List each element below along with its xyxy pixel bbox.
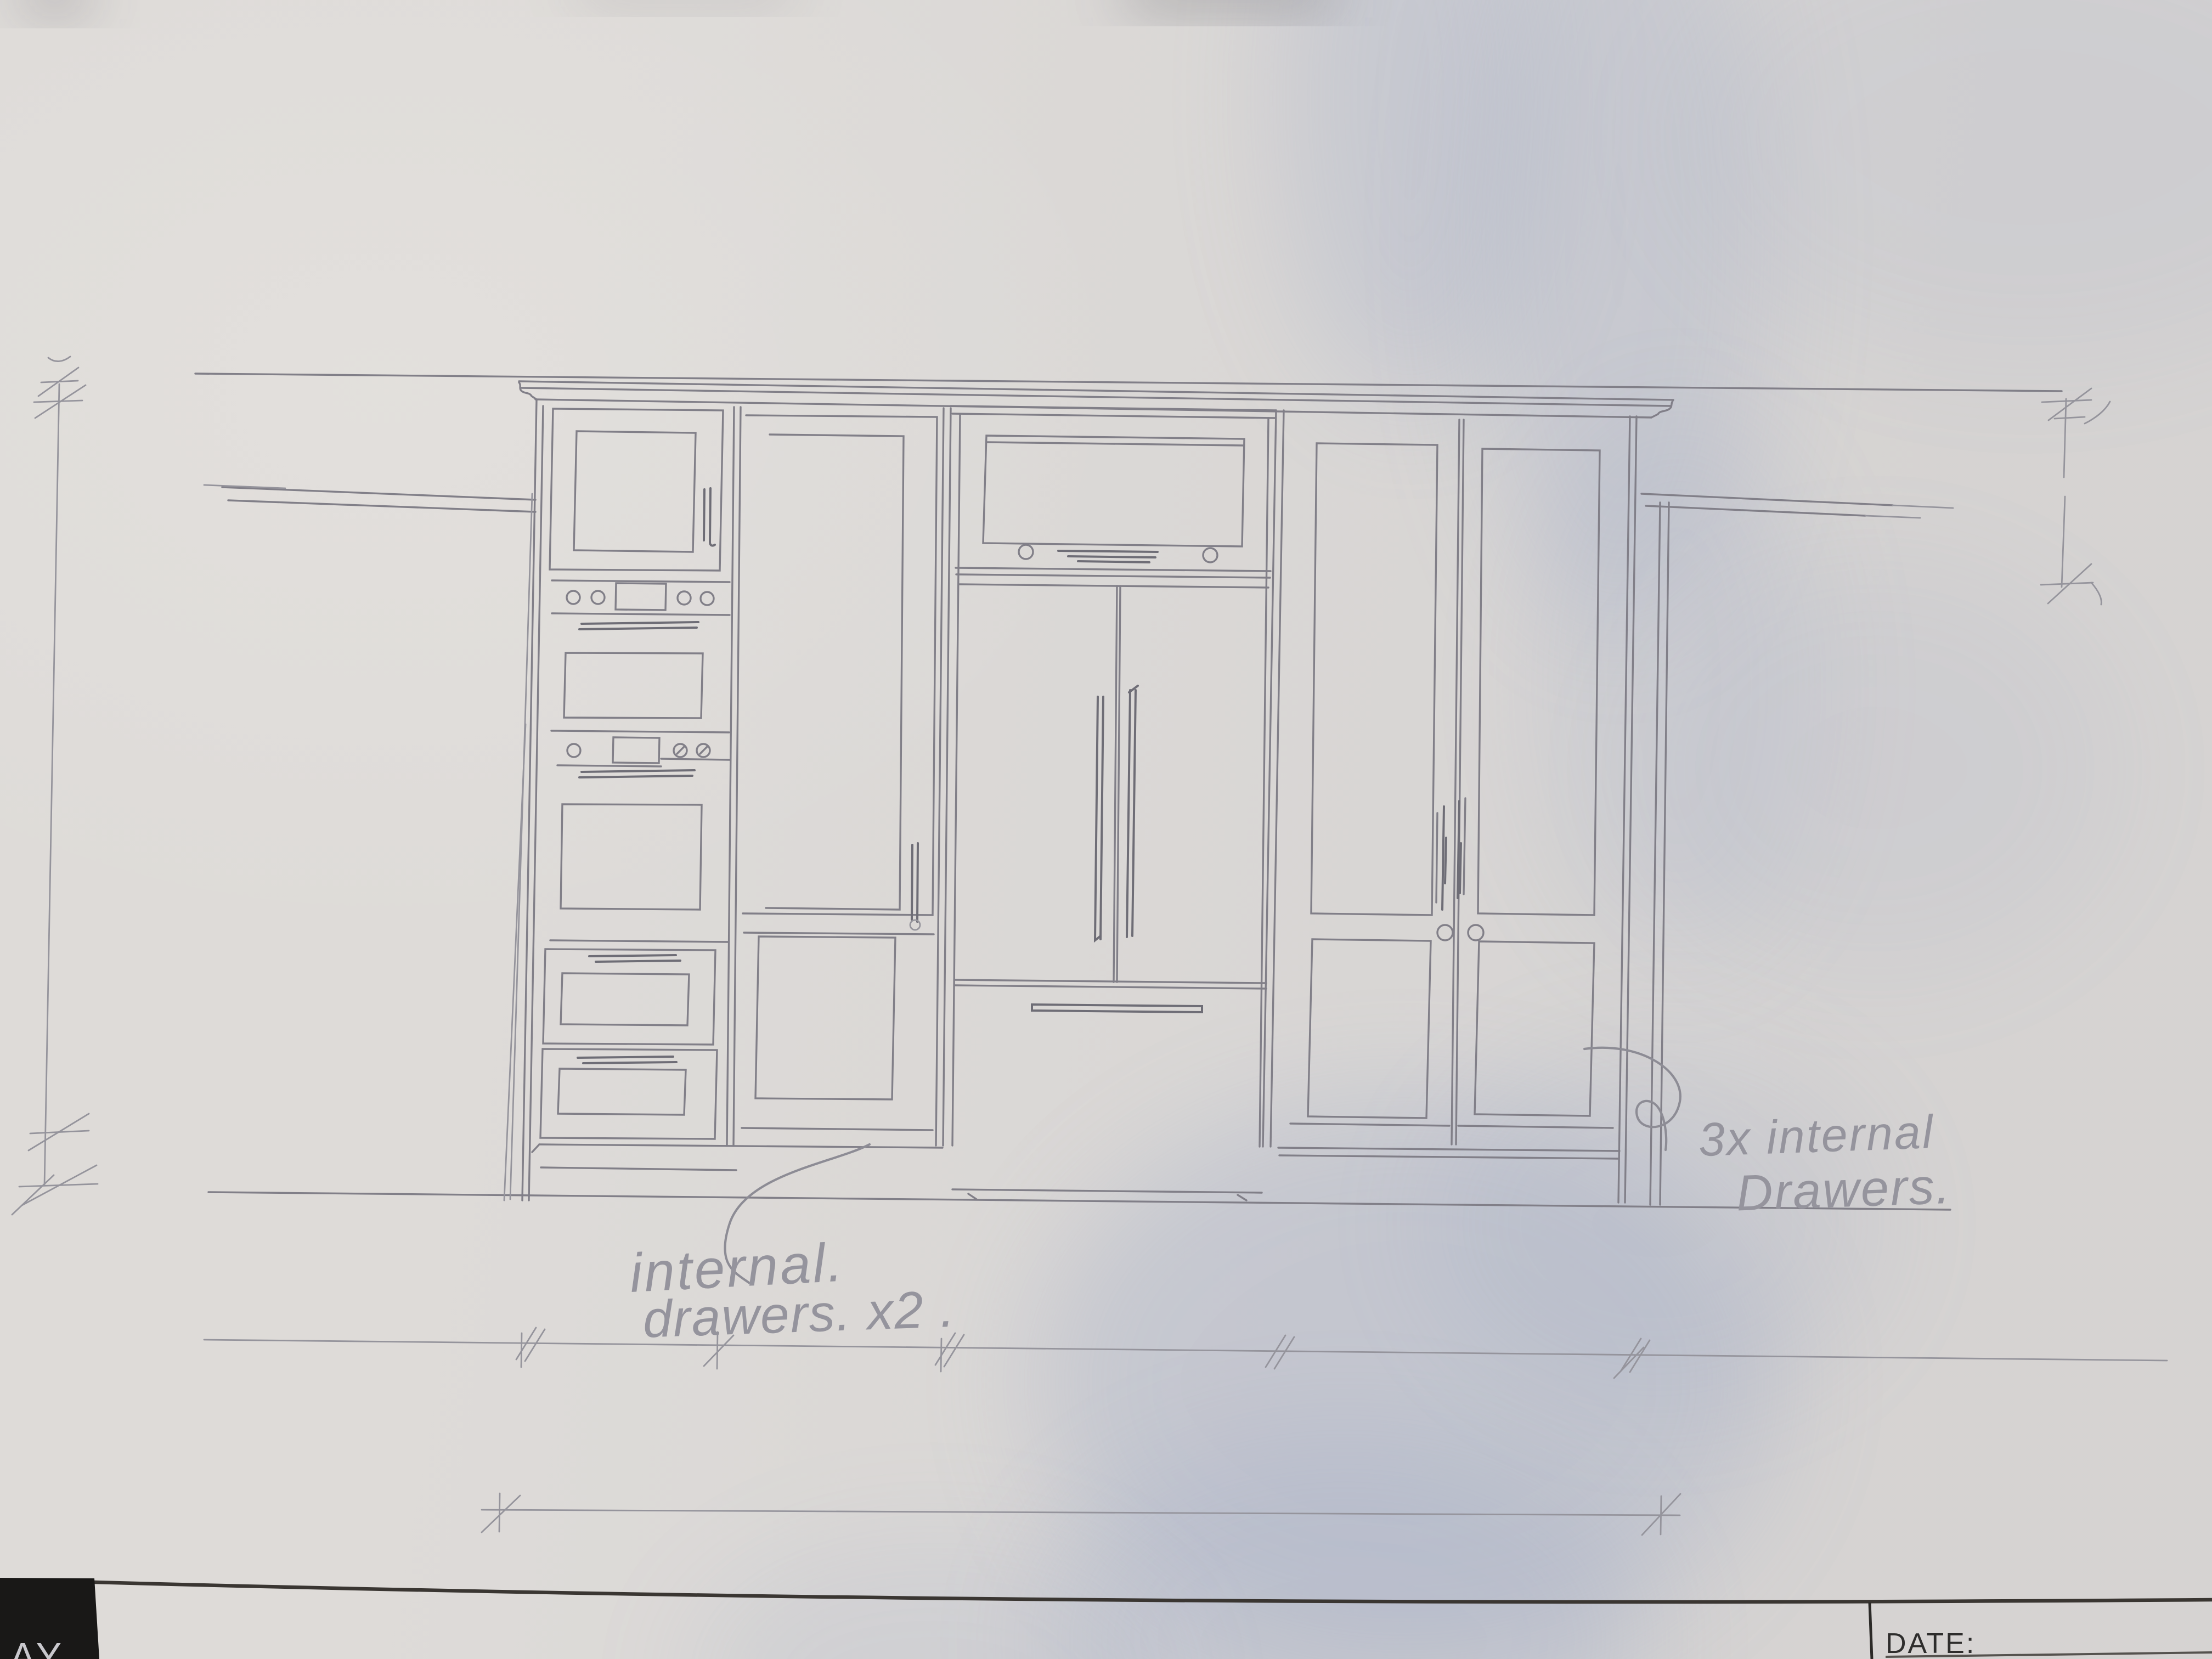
svg-text:Drawers.: Drawers.	[1735, 1158, 1952, 1222]
svg-text:3x internal: 3x internal	[1697, 1105, 1935, 1166]
svg-text:drawers. x2 .: drawers. x2 .	[642, 1280, 956, 1349]
svg-text:AY: AY	[10, 1635, 65, 1659]
svg-text:DATE:: DATE:	[1886, 1628, 1976, 1659]
